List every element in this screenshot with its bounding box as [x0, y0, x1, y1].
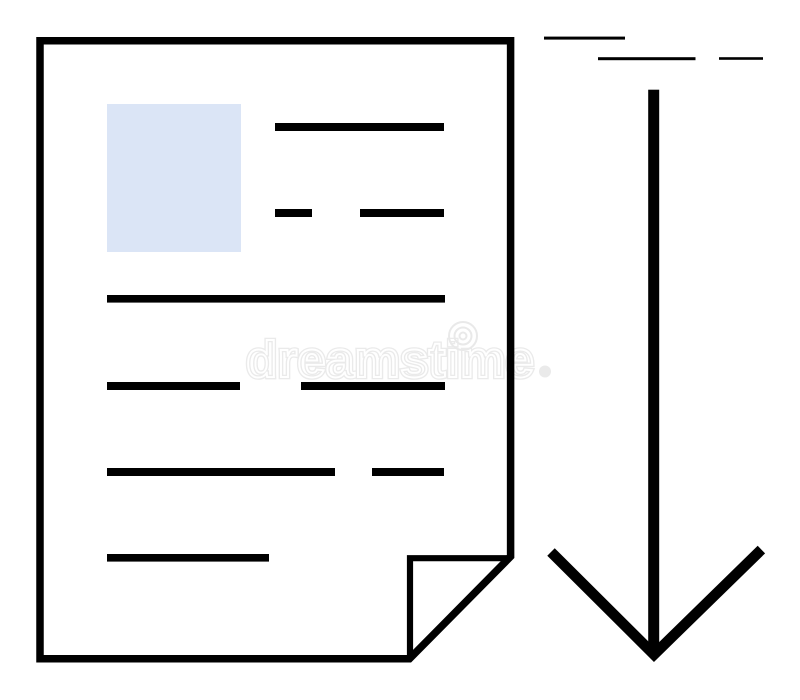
- svg-text:dreamstime: dreamstime: [246, 331, 534, 388]
